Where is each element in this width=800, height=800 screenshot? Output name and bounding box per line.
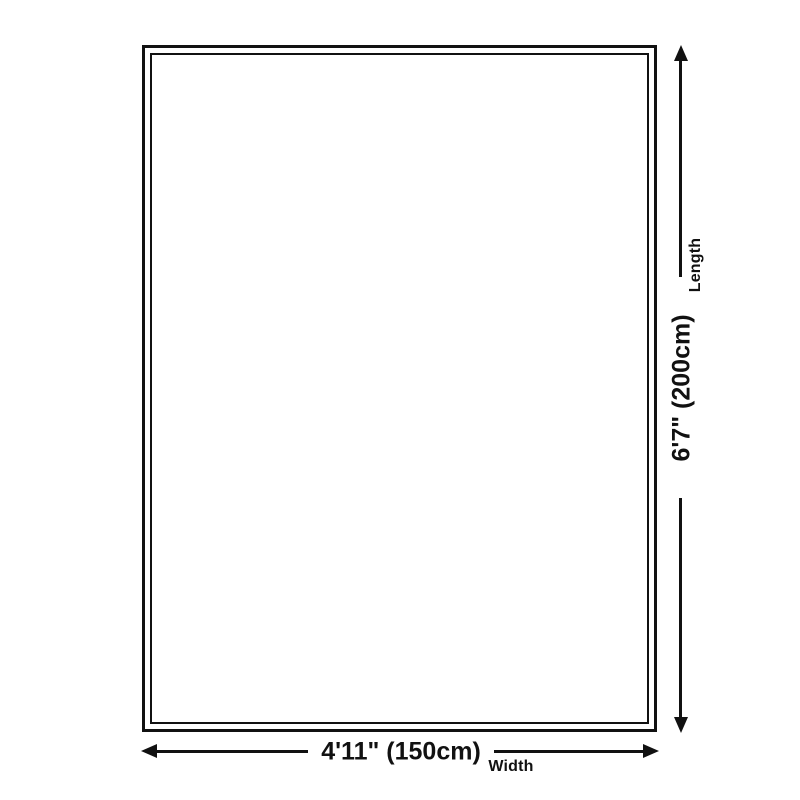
product-outer-border [142,45,657,732]
dimension-diagram: Length 6'7" (200cm) 4'11" (150cm) Width [0,0,800,800]
width-value: 4'11" (150cm) [321,740,481,765]
length-dimension-line-bottom [679,498,682,719]
product-inner-border [150,53,649,724]
length-value: 6'7" (200cm) [670,314,695,461]
arrow-left-icon [141,744,157,758]
arrow-down-icon [674,717,688,733]
width-dimension-line-right [494,750,644,753]
length-dimension-line-top [679,58,682,277]
arrow-right-icon [643,744,659,758]
length-label: Length [688,238,704,293]
width-label: Width [488,759,533,775]
width-dimension-line-left [156,750,308,753]
